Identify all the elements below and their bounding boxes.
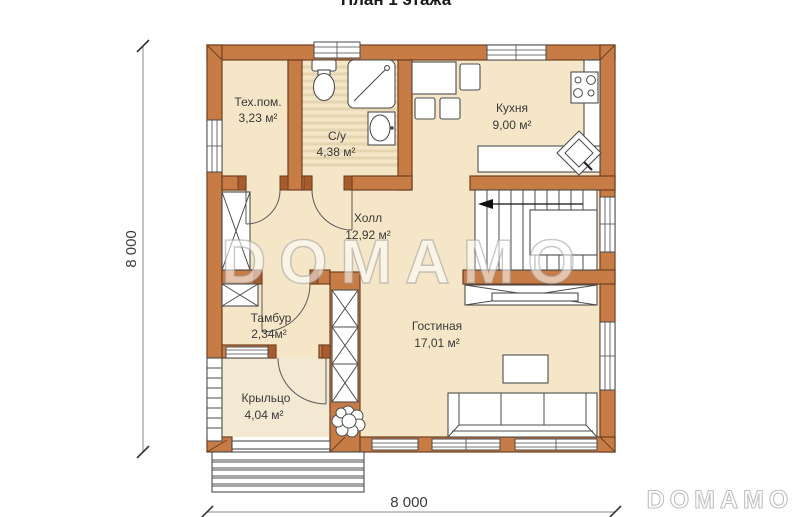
window-bath-vent: [314, 42, 360, 58]
floor-plan-page: План 1 этажа: [0, 0, 800, 517]
floor-plan: План 1 этажа: [0, 0, 800, 517]
dimension-width-label: 8 000: [390, 494, 428, 511]
dining-table: [412, 62, 456, 94]
dimension-height-label: 8 000: [123, 230, 140, 268]
label-tech-area: 3,23 м²: [239, 111, 278, 125]
label-living-name: Гостиная: [412, 319, 462, 333]
brand-logo: DOMAMO: [647, 486, 794, 514]
label-tambour-area: 2,34м²: [251, 327, 287, 341]
label-tech-name: Тех.пом.: [234, 95, 281, 109]
toilet: [312, 60, 336, 101]
porch-steps: [212, 452, 364, 492]
window-right-upper: [600, 197, 615, 252]
window-right-lower: [600, 322, 615, 390]
shower-cabin: [348, 60, 395, 108]
window-bottom-a: [372, 439, 418, 450]
watermark: DOMAMO: [221, 228, 588, 297]
window-tambour: [226, 347, 268, 358]
label-bath-name: С/у: [328, 129, 346, 143]
window-kitchen-top: [487, 45, 546, 60]
label-kitchen-area: 9,00 м²: [493, 118, 532, 132]
stove: [571, 72, 598, 103]
dimension-bottom: 8 000: [201, 494, 621, 517]
label-bath-area: 4,38 м²: [317, 145, 356, 159]
exterior-wall-top: [207, 45, 615, 60]
label-kitchen-name: Кухня: [496, 101, 528, 115]
wardrobe-column: [332, 290, 358, 402]
label-tambour-name: Тамбур: [251, 311, 292, 325]
exterior-wall-left: [207, 45, 222, 358]
clipped-heading: План 1 этажа: [341, 0, 452, 9]
porch-slab-edge: [232, 441, 330, 449]
window-bottom-c: [515, 439, 597, 450]
washbasin: [368, 112, 395, 145]
porch-railing: [207, 358, 222, 441]
window-bottom-b: [432, 439, 500, 450]
label-living-area: 17,01 м²: [414, 336, 460, 350]
dimension-left: 8 000: [123, 40, 149, 458]
label-porch-name: Крыльцо: [242, 391, 291, 405]
label-hall-name: Холл: [354, 211, 382, 225]
window-tech-left: [207, 120, 222, 172]
label-porch-area: 4,04 м²: [245, 408, 284, 422]
sofa: [448, 393, 597, 437]
coffee-table: [503, 355, 548, 383]
